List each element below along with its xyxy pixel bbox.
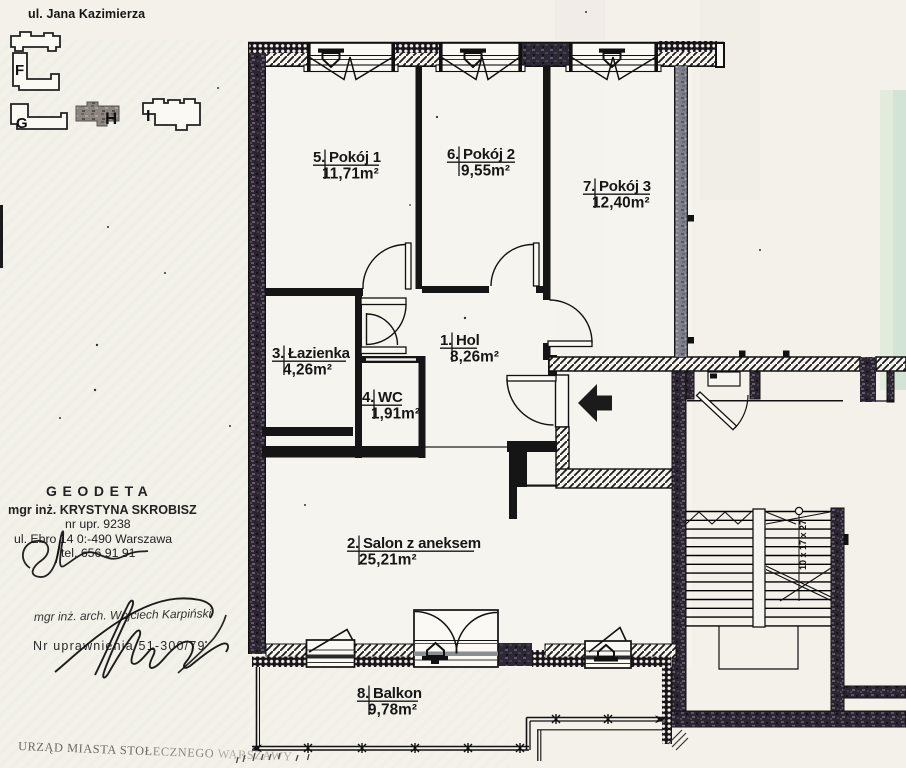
svg-text:7.: 7. (583, 178, 595, 195)
svg-text:tel. 656 91 91: tel. 656 91 91 (61, 546, 136, 560)
svg-text:WC: WC (378, 389, 403, 406)
svg-text:12,40m²: 12,40m² (592, 195, 650, 212)
svg-text:9,55m²: 9,55m² (461, 163, 510, 180)
svg-text:G: G (16, 115, 28, 132)
svg-text:Pokój 1: Pokój 1 (329, 149, 381, 166)
svg-text:4,26m²: 4,26m² (283, 362, 332, 379)
svg-text:2.: 2. (347, 535, 359, 552)
svg-text:mgr inż. KRYSTYNA SKROBISZ: mgr inż. KRYSTYNA SKROBISZ (8, 503, 197, 517)
svg-text:4.: 4. (362, 389, 374, 406)
svg-text:3.: 3. (272, 345, 284, 362)
svg-text:Pokój 3: Pokój 3 (599, 178, 651, 195)
svg-text:F: F (15, 62, 24, 79)
svg-text:ul. Jana Kazimierza: ul. Jana Kazimierza (28, 7, 146, 21)
svg-text:1.: 1. (440, 332, 452, 349)
svg-text:1,91m²: 1,91m² (371, 406, 420, 423)
svg-text:6.: 6. (447, 146, 459, 163)
svg-text:H: H (105, 109, 117, 128)
svg-text:5.: 5. (313, 149, 325, 166)
svg-text:Balkon: Balkon (373, 685, 422, 702)
svg-text:Pokój 2: Pokój 2 (463, 146, 515, 163)
svg-text:GEODETA: GEODETA (46, 483, 153, 499)
svg-text:Łazienka: Łazienka (288, 345, 351, 362)
svg-text:9,78m²: 9,78m² (368, 702, 417, 719)
svg-text:8,26m²: 8,26m² (450, 349, 499, 366)
svg-text:10 x 17 x 27: 10 x 17 x 27 (798, 520, 808, 570)
svg-text:Nr uprawnienia 51-300/79: Nr uprawnienia 51-300/79 (33, 639, 206, 653)
svg-text:8.: 8. (357, 685, 369, 702)
svg-text:I: I (146, 108, 150, 125)
svg-text:ul. Ebro 14 0:-490 Warszawa: ul. Ebro 14 0:-490 Warszawa (14, 532, 172, 546)
svg-text:25,21m²: 25,21m² (359, 552, 417, 569)
svg-text:Salon z aneksem: Salon z aneksem (363, 535, 481, 552)
svg-text:Hol: Hol (456, 332, 480, 349)
svg-text:11,71m²: 11,71m² (322, 166, 379, 183)
svg-text:nr upr. 9238: nr upr. 9238 (65, 517, 131, 531)
